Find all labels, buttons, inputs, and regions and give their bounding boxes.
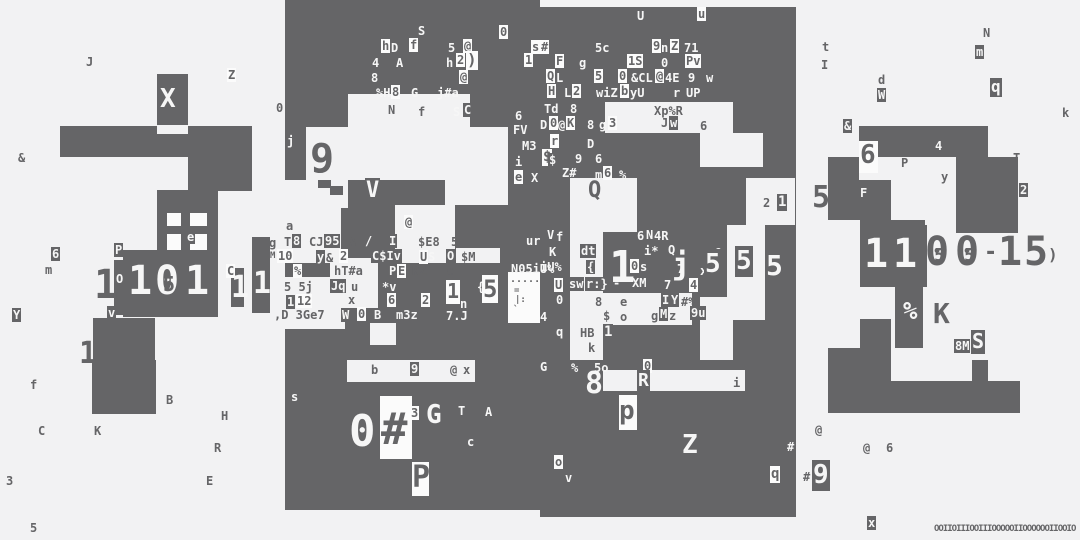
glyph: - xyxy=(984,240,997,266)
glyph: 6 xyxy=(387,293,396,307)
glyph: Y xyxy=(12,308,21,322)
glyph: 3 xyxy=(410,406,419,420)
glyph: N xyxy=(983,26,990,40)
glyph: &CL xyxy=(631,71,653,85)
glyph: o xyxy=(554,455,563,469)
glyph: 5 xyxy=(1024,229,1048,276)
glyph: 2 xyxy=(572,84,581,98)
glyph: HB xyxy=(580,326,594,340)
glyph: sw xyxy=(568,277,584,291)
glyph: H xyxy=(221,409,228,423)
glyph: J xyxy=(661,116,668,130)
glyph: G xyxy=(411,86,418,100)
glyph: 1 xyxy=(603,324,613,341)
glyph: m xyxy=(975,45,984,59)
glyph: r xyxy=(673,86,680,100)
glyph: u xyxy=(697,7,706,21)
glyph: z xyxy=(669,309,676,323)
glyph: % xyxy=(619,168,626,182)
glyph: 6 xyxy=(860,140,876,171)
glyph: 3 xyxy=(6,474,13,488)
glyph: 1 xyxy=(253,266,271,301)
block xyxy=(956,157,1018,233)
glyph: K xyxy=(933,297,950,330)
glyph: e xyxy=(186,230,195,244)
glyph: Jq xyxy=(330,279,346,293)
glyph: X xyxy=(160,84,176,115)
glyph: d xyxy=(878,73,885,87)
glyph: c xyxy=(466,435,475,449)
glyph: Td xyxy=(544,102,558,116)
glyph: & xyxy=(843,119,852,133)
glyph: 5 xyxy=(163,273,175,297)
block xyxy=(891,381,1020,413)
glyph: wiZ xyxy=(596,86,618,100)
glyph: r xyxy=(550,134,559,148)
glyph: x xyxy=(867,516,876,530)
glyph: 1 xyxy=(446,280,460,304)
glyph: t xyxy=(822,40,829,54)
glyph: 1 xyxy=(128,258,152,305)
glyph: 1 xyxy=(893,231,917,278)
hole xyxy=(445,127,508,205)
glyph: B xyxy=(166,393,173,407)
glyph: iU% xyxy=(540,260,562,274)
glyph: m xyxy=(45,263,52,277)
glyph: - xyxy=(613,276,620,290)
glyph: x xyxy=(348,293,355,307)
glyph: M xyxy=(659,307,668,321)
glyph: S xyxy=(453,105,460,119)
glyph: dt xyxy=(580,244,596,258)
glyph: @ xyxy=(815,423,822,437)
glyph: ur xyxy=(525,234,541,248)
glyph: @ xyxy=(655,69,664,83)
glyph: 0 xyxy=(618,69,627,83)
glyph: T xyxy=(457,404,466,418)
glyph: U xyxy=(419,250,428,264)
glyph: L xyxy=(564,86,571,100)
glyph: 12 xyxy=(296,294,312,308)
glyph: R xyxy=(637,370,650,391)
glyph: 8 xyxy=(587,118,594,132)
glyph: x xyxy=(463,363,470,377)
glyph: 5 xyxy=(704,249,722,280)
glyph: N xyxy=(645,228,654,242)
glyph: 5 xyxy=(482,275,498,303)
glyph: U xyxy=(554,278,563,292)
glyph: h xyxy=(446,56,453,70)
glyph: 4E xyxy=(665,71,679,85)
glyph: 4 xyxy=(689,278,698,292)
glyph: #% xyxy=(681,295,695,309)
glyph: K xyxy=(549,245,556,259)
hole xyxy=(603,178,637,232)
glyph: J xyxy=(86,55,93,69)
glyph: 8 xyxy=(292,234,301,248)
glyph: Z xyxy=(227,68,236,82)
glyph: @ xyxy=(558,118,565,132)
glyph: 1 xyxy=(231,270,249,305)
glyph: f xyxy=(418,105,425,119)
glyph: k xyxy=(1062,106,1069,120)
glyph: P xyxy=(114,243,123,257)
glyph: 9 xyxy=(310,136,334,183)
glyph: v xyxy=(565,471,572,485)
glyph: Z# xyxy=(562,166,576,180)
glyph: I xyxy=(821,58,828,72)
glyph: i xyxy=(733,376,740,390)
block xyxy=(60,126,252,157)
glyph: s xyxy=(290,390,299,404)
glyph: q xyxy=(770,466,780,483)
glyph: ) xyxy=(1048,246,1058,265)
glyph: U xyxy=(637,9,644,23)
glyph: # xyxy=(787,440,794,454)
glyph: 1 xyxy=(524,53,533,67)
glyph: h xyxy=(381,39,390,53)
glyph: r:} xyxy=(585,277,609,291)
glyph: ..... xyxy=(510,274,540,286)
glyph: P xyxy=(901,156,908,170)
glyph: 95 xyxy=(324,234,340,248)
glyph: V xyxy=(365,178,380,204)
glyph: % xyxy=(902,297,918,325)
glyph: $ xyxy=(548,153,557,167)
glyph: ,D 3Ge7 xyxy=(274,308,325,322)
glyph: 4 xyxy=(935,139,942,153)
glyph: 5 xyxy=(594,69,603,83)
glyph: 2 xyxy=(456,53,465,67)
glyph: 1 xyxy=(998,229,1022,276)
glyph: RZ xyxy=(412,264,426,278)
glyph: F xyxy=(555,54,564,68)
glyph: j#a xyxy=(437,86,459,100)
glyph: 0 xyxy=(357,307,366,321)
glyph: O xyxy=(446,249,455,263)
glyph: w xyxy=(669,116,678,130)
glyph: 9 xyxy=(410,362,419,376)
glyph: % xyxy=(293,264,302,278)
glyph: 9 xyxy=(812,460,830,491)
glyph: G xyxy=(426,400,442,431)
glyph: T xyxy=(1013,151,1020,165)
glyph: 7 xyxy=(664,278,671,292)
glyph: 3 xyxy=(608,116,617,130)
glyph: 7.J xyxy=(446,309,468,323)
block xyxy=(828,360,891,413)
glyph: n xyxy=(661,41,668,55)
glyph: s xyxy=(640,260,647,274)
hole xyxy=(157,126,188,134)
hole xyxy=(540,0,797,7)
glyph: / xyxy=(364,234,373,248)
glyph: 5 xyxy=(765,249,784,282)
glyph: @ xyxy=(450,363,457,377)
glyph: 1 xyxy=(94,262,118,309)
glyph: w xyxy=(706,71,713,85)
glyph: G xyxy=(540,360,547,374)
glyph: 0 xyxy=(556,293,563,307)
hole xyxy=(746,178,795,225)
glyph: A xyxy=(396,56,403,70)
glyph: C xyxy=(38,424,45,438)
glyph: e xyxy=(620,295,627,309)
glyph: FV xyxy=(513,123,527,137)
glyph: A xyxy=(349,235,356,249)
glyph: 0 xyxy=(499,25,508,39)
glyph: S xyxy=(971,330,985,354)
block xyxy=(330,186,343,195)
glyph: Q xyxy=(546,69,555,83)
glyph: 5 5j xyxy=(284,280,313,294)
glyph: 5 xyxy=(934,245,945,266)
glyph: q xyxy=(556,325,563,339)
glyph: 9 xyxy=(688,71,695,85)
glyph: 8 xyxy=(570,102,577,116)
glyph: 5 xyxy=(448,41,455,55)
glyph: i xyxy=(515,155,522,169)
glyph: 4 xyxy=(372,56,379,70)
glyph: b xyxy=(371,363,378,377)
glyph: # xyxy=(540,40,549,54)
glyph: L xyxy=(556,71,563,85)
glyph: o xyxy=(620,310,627,324)
glyph: @ xyxy=(404,215,413,229)
glyph: 1S xyxy=(627,54,643,68)
glyph: ) xyxy=(466,51,478,70)
glyph: 2 xyxy=(763,196,770,210)
glyph: 1 xyxy=(185,258,209,305)
glyph: & xyxy=(18,151,25,165)
glyph: 2 xyxy=(1019,183,1028,197)
glyph: 9 xyxy=(575,152,582,166)
glyph: H xyxy=(547,84,556,98)
glyph: 4R xyxy=(654,229,668,243)
glyph: yU xyxy=(630,86,644,100)
glyph: 6 xyxy=(886,441,893,455)
glyph: C xyxy=(463,103,472,117)
glyph: UP xyxy=(686,86,700,100)
glyph: g xyxy=(579,56,586,70)
glyph: P xyxy=(389,264,396,278)
glyph: Pv xyxy=(685,54,701,68)
glyph: 9 xyxy=(652,39,661,53)
glyph: 0 xyxy=(549,116,558,130)
glyph: S xyxy=(428,250,435,264)
glyph: %H xyxy=(376,86,390,100)
glyph: I xyxy=(388,234,397,248)
block xyxy=(188,157,252,191)
glyph: 5 xyxy=(451,235,458,249)
glyph: F xyxy=(860,186,867,200)
glyph: @ xyxy=(863,441,870,455)
glyph: g xyxy=(269,236,276,250)
glyph: b xyxy=(620,84,629,98)
glyph: M xyxy=(270,251,275,262)
glyph: y xyxy=(941,170,948,184)
glyph: 6 xyxy=(637,229,644,243)
glyph: 2 xyxy=(421,293,430,307)
glyph: 5 xyxy=(812,180,830,215)
glyph: 0 xyxy=(349,406,376,458)
glyph: Z xyxy=(682,430,698,461)
block xyxy=(93,318,155,360)
glyph: D xyxy=(391,41,398,55)
glyph: B xyxy=(373,308,382,322)
glyph: $M xyxy=(461,250,475,264)
glyph: ` xyxy=(513,305,518,316)
glyph: S xyxy=(418,24,425,38)
glyph: 6 xyxy=(700,119,707,133)
glyph: 4 xyxy=(540,310,547,324)
glyph: X xyxy=(531,171,538,185)
glyph: E xyxy=(206,474,213,488)
glyph: W xyxy=(877,88,886,102)
glyph: N xyxy=(388,103,395,117)
glyph: 8 xyxy=(391,85,400,99)
glyph: $ xyxy=(603,309,610,323)
glyph: e xyxy=(514,170,523,184)
glyph: D xyxy=(587,137,594,151)
glyph: f xyxy=(556,230,563,244)
glyph: D xyxy=(540,118,547,132)
glyph: 8 xyxy=(371,71,378,85)
glyph: 8 xyxy=(585,366,603,401)
glyph: W xyxy=(341,308,350,322)
glyph: g xyxy=(651,309,658,323)
glyph: 1 xyxy=(864,231,888,278)
glyph: j xyxy=(287,134,294,148)
glyph: M3 xyxy=(522,139,536,153)
glyph: # xyxy=(381,404,408,456)
glyph: R xyxy=(214,441,221,455)
glyph: $E8 xyxy=(418,235,440,249)
glyph: 6 xyxy=(51,247,60,261)
glyph: a xyxy=(286,219,293,233)
glyph: 8 xyxy=(595,295,602,309)
glyph: 1 xyxy=(79,336,97,371)
glyph: T xyxy=(284,235,291,249)
glyph: hT#a xyxy=(334,264,363,278)
glyph: 0 xyxy=(276,101,283,115)
glyph: V xyxy=(546,228,555,242)
hole xyxy=(700,133,763,167)
glyph: CJ xyxy=(309,235,323,249)
hole xyxy=(370,323,396,345)
glyph: 7 xyxy=(677,262,684,276)
glyph: & xyxy=(326,251,333,265)
glitch-art-canvas: JZ0&Xm6YPOve1fBHCKR3E511051C11S0UuhDf5@s… xyxy=(0,0,1080,540)
glyph: @ xyxy=(459,70,468,84)
glyph: Q xyxy=(588,178,601,204)
glyph: 6 xyxy=(603,166,612,180)
glyph: 6 xyxy=(515,109,522,123)
glyph: E xyxy=(397,264,406,278)
glyph: k xyxy=(588,341,595,355)
glyph: Y xyxy=(670,293,679,307)
glyph: C$Iv xyxy=(371,249,402,263)
glyph: { xyxy=(586,260,595,274)
glyph: c xyxy=(446,264,453,278)
glyph: 2 xyxy=(339,249,348,263)
glyph: A xyxy=(484,405,493,419)
glyph: m3z xyxy=(396,308,418,322)
glyph: 5 xyxy=(30,521,37,535)
glyph: 5 xyxy=(964,245,975,266)
glyph: f xyxy=(30,378,37,392)
glyph: XM xyxy=(632,276,646,290)
glyph: q xyxy=(990,78,1002,97)
barcode-strip: OOIIOIIIOOIIIOOOOOIIOOOOOOIIOOIO xyxy=(934,524,1075,535)
glyph: P xyxy=(412,460,430,495)
glyph: i* xyxy=(644,244,658,258)
glyph: 5 xyxy=(735,246,753,277)
glyph: 1 xyxy=(777,194,787,211)
block xyxy=(859,126,988,157)
glyph: g xyxy=(599,118,606,132)
block xyxy=(972,360,988,381)
glyph: p xyxy=(619,396,635,427)
glyph: K xyxy=(566,116,575,130)
glyph: 0 xyxy=(630,259,639,273)
glyph: 8M xyxy=(954,339,970,353)
glyph: 6 xyxy=(595,152,602,166)
hole xyxy=(603,370,745,391)
glyph: 5c xyxy=(595,41,609,55)
glyph: 10 xyxy=(277,249,293,263)
glyph: K xyxy=(94,424,101,438)
glyph: % xyxy=(570,361,579,375)
glyph: Z xyxy=(670,39,679,53)
glyph: y xyxy=(316,250,325,264)
glyph: # xyxy=(803,470,810,484)
glyph: f xyxy=(409,38,418,52)
glyph: I xyxy=(661,293,670,307)
block xyxy=(92,360,156,414)
